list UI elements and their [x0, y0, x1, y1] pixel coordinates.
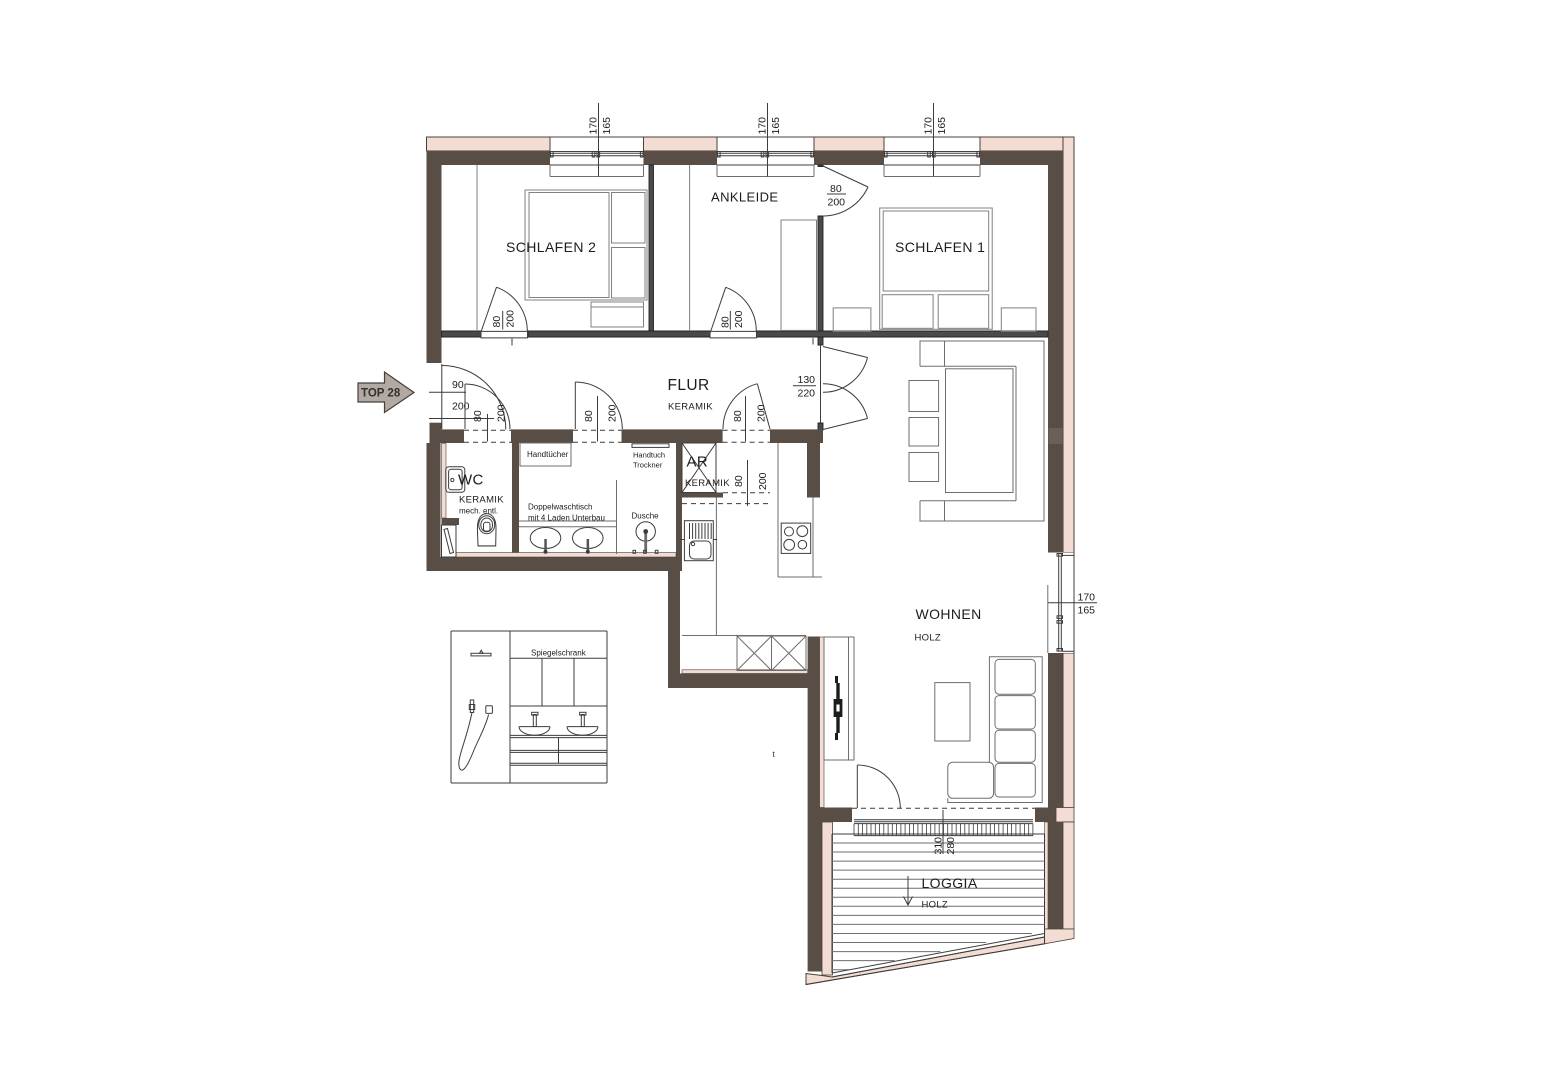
- svg-text:SCHLAFEN 2: SCHLAFEN 2: [506, 239, 596, 255]
- svg-text:165: 165: [1078, 605, 1096, 617]
- svg-text:mech. entl.: mech. entl.: [459, 507, 498, 516]
- svg-text:170: 170: [588, 117, 600, 135]
- svg-text:KERAMIK: KERAMIK: [685, 478, 730, 489]
- svg-text:200: 200: [607, 404, 619, 422]
- svg-text:WOHNEN: WOHNEN: [916, 606, 982, 622]
- svg-text:KERAMIK: KERAMIK: [459, 495, 504, 506]
- svg-text:200: 200: [757, 472, 769, 490]
- svg-text:KERAMIK: KERAMIK: [668, 402, 713, 413]
- svg-text:200: 200: [756, 404, 768, 422]
- svg-text:170: 170: [1078, 592, 1096, 604]
- svg-text:200: 200: [452, 401, 470, 413]
- svg-text:90: 90: [452, 379, 464, 391]
- svg-text:165: 165: [936, 117, 948, 135]
- svg-text:200: 200: [505, 310, 517, 328]
- svg-text:165: 165: [601, 117, 613, 135]
- svg-text:80: 80: [720, 316, 732, 328]
- svg-text:130: 130: [798, 374, 816, 386]
- svg-text:Trockner: Trockner: [633, 461, 663, 470]
- svg-text:ANKLEIDE: ANKLEIDE: [711, 190, 779, 205]
- svg-text:WC: WC: [458, 472, 484, 489]
- svg-text:Dusche: Dusche: [632, 512, 660, 521]
- svg-text:200: 200: [733, 310, 745, 328]
- svg-text:200: 200: [496, 404, 508, 422]
- svg-text:Handtuch: Handtuch: [633, 451, 665, 460]
- svg-text:HOLZ: HOLZ: [915, 633, 942, 644]
- svg-text:LOGGIA: LOGGIA: [922, 875, 978, 891]
- svg-text:80: 80: [732, 410, 744, 422]
- svg-text:80: 80: [830, 183, 842, 195]
- svg-text:170: 170: [923, 117, 935, 135]
- svg-text:AR: AR: [687, 454, 709, 471]
- svg-text:280: 280: [945, 837, 957, 855]
- svg-text:80: 80: [472, 410, 484, 422]
- svg-text:Handtücher: Handtücher: [527, 450, 569, 459]
- svg-text:TOP 28: TOP 28: [361, 388, 401, 400]
- svg-text:HOLZ: HOLZ: [922, 900, 949, 911]
- svg-text:80: 80: [733, 475, 745, 487]
- svg-text:Doppelwaschtisch: Doppelwaschtisch: [528, 503, 592, 512]
- svg-text:FLUR: FLUR: [668, 377, 710, 394]
- svg-text:165: 165: [770, 117, 782, 135]
- svg-text:310: 310: [933, 837, 945, 855]
- svg-text:200: 200: [828, 197, 846, 209]
- svg-text:80: 80: [583, 410, 595, 422]
- svg-text:mit 4 Laden Unterbau: mit 4 Laden Unterbau: [528, 514, 605, 523]
- svg-text:220: 220: [798, 388, 816, 400]
- svg-text:170: 170: [757, 117, 769, 135]
- svg-text:Spiegelschrank: Spiegelschrank: [531, 649, 587, 658]
- svg-text:SCHLAFEN 1: SCHLAFEN 1: [895, 239, 985, 255]
- svg-text:80: 80: [491, 316, 503, 328]
